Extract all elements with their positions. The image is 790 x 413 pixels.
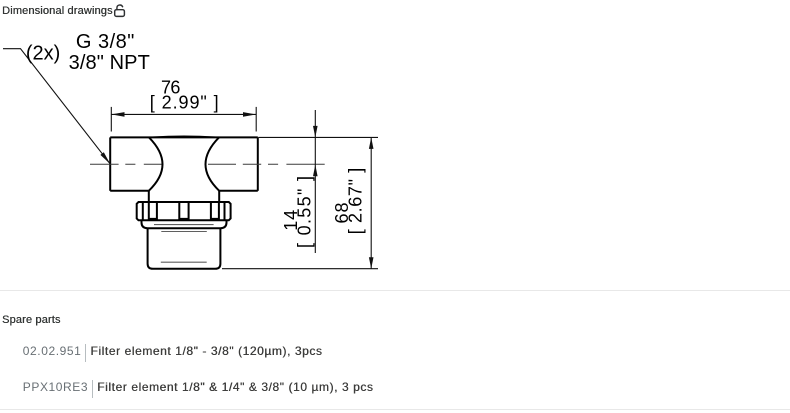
svg-text:[ 2.67" ]: [ 2.67" ]: [345, 168, 365, 235]
svg-text:[ 0.55" ]: [ 0.55" ]: [294, 176, 314, 248]
svg-text:G 3/8": G 3/8": [76, 31, 134, 53]
svg-text:[ 2.99" ]: [ 2.99" ]: [150, 93, 219, 113]
svg-text:3/8" NPT: 3/8" NPT: [69, 52, 150, 74]
svg-text:(2x): (2x): [26, 43, 60, 65]
